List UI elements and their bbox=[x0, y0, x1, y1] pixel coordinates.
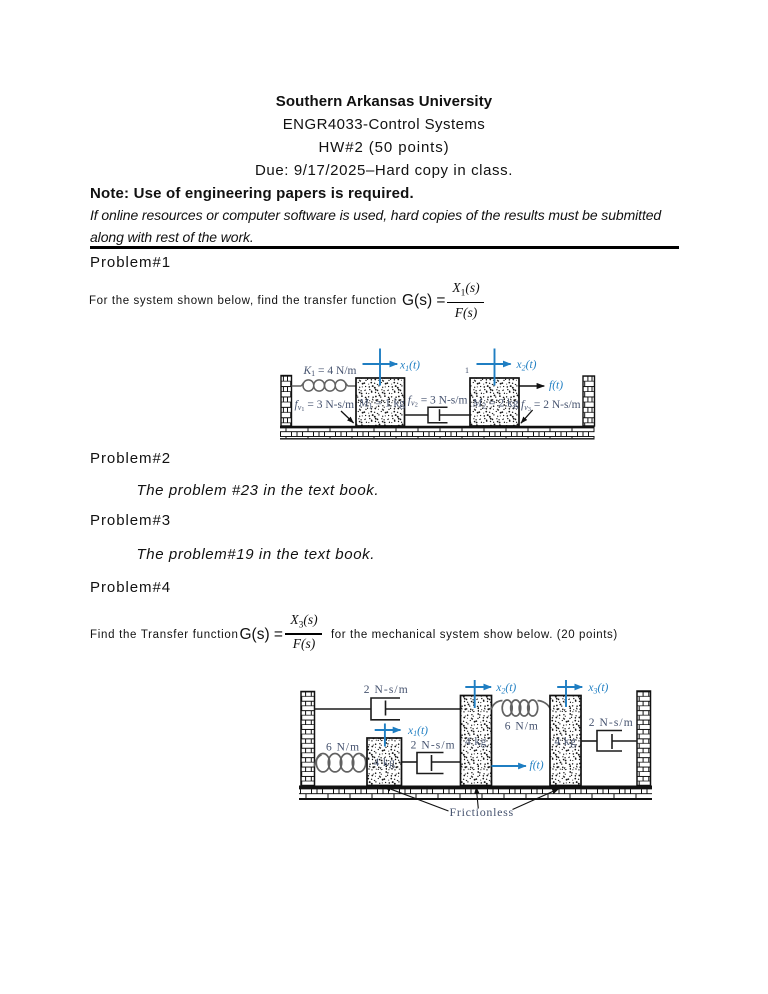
svg-text:x3(t): x3(t) bbox=[587, 682, 608, 695]
svg-text:4 kg: 4 kg bbox=[465, 736, 487, 748]
svg-text:x2(t): x2(t) bbox=[495, 682, 516, 695]
svg-text:f(t): f(t) bbox=[549, 379, 563, 391]
svg-text:2 N-s/m: 2 N-s/m bbox=[589, 717, 634, 729]
svg-text:6 N/m: 6 N/m bbox=[326, 741, 360, 753]
svg-text:2 N-s/m: 2 N-s/m bbox=[364, 684, 409, 696]
svg-text:M2 = 2 kg: M2 = 2 kg bbox=[472, 397, 519, 410]
svg-text:f(t): f(t) bbox=[530, 760, 544, 772]
svg-text:1: 1 bbox=[465, 366, 469, 375]
svg-text:x2(t): x2(t) bbox=[516, 359, 537, 372]
svg-text:M1 = 1 kg: M1 = 1 kg bbox=[358, 397, 405, 410]
svg-text:fv1 = 3 N-s/m: fv1 = 3 N-s/m bbox=[295, 399, 355, 413]
svg-text:fv3 = 2 N-s/m: fv3 = 2 N-s/m bbox=[521, 399, 581, 413]
svg-text:x1(t): x1(t) bbox=[407, 725, 428, 738]
svg-text:x1(t): x1(t) bbox=[399, 360, 420, 373]
svg-text:Frictionless: Frictionless bbox=[450, 805, 514, 819]
svg-text:2 N-s/m: 2 N-s/m bbox=[411, 740, 456, 752]
svg-text:K1 = 4 N/m: K1 = 4 N/m bbox=[303, 365, 357, 378]
svg-text:4 kg: 4 kg bbox=[374, 757, 396, 769]
svg-text:6 N/m: 6 N/m bbox=[505, 721, 539, 733]
svg-text:4 kg: 4 kg bbox=[555, 736, 577, 748]
